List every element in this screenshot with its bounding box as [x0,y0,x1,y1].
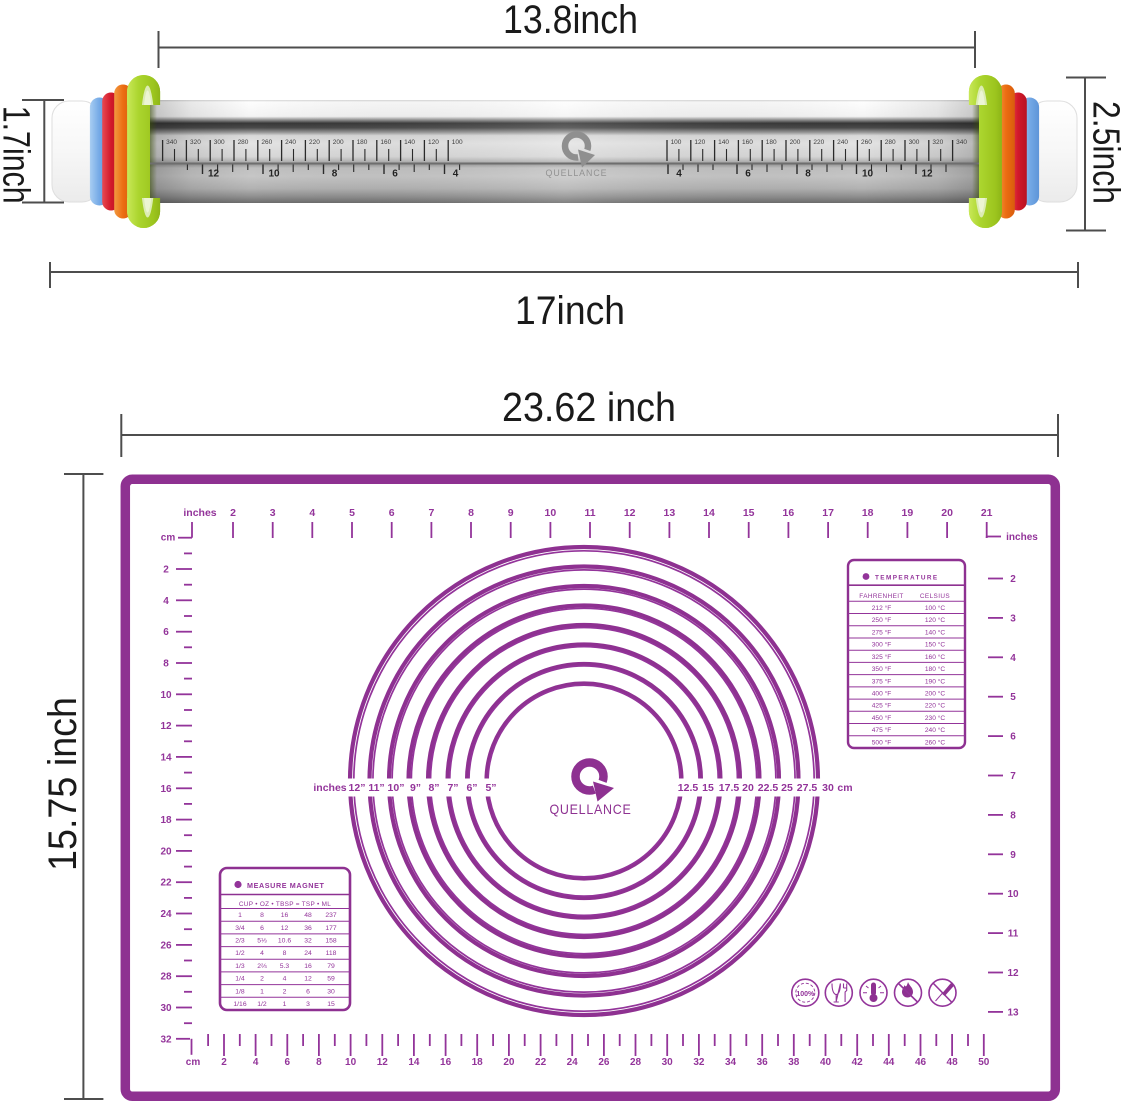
svg-text:3: 3 [306,1001,310,1008]
svg-text:6: 6 [389,507,395,519]
svg-text:160 °C: 160 °C [925,653,945,661]
svg-text:18: 18 [160,815,172,826]
svg-text:QUELLANCE: QUELLANCE [546,168,608,179]
svg-text:5”: 5” [485,782,496,794]
svg-text:QUELLANCE: QUELLANCE [550,801,632,817]
svg-text:16: 16 [281,912,289,919]
svg-text:275 °F: 275 °F [872,628,892,636]
svg-text:12: 12 [304,976,312,983]
svg-text:1/2: 1/2 [257,1001,267,1008]
svg-text:14: 14 [408,1057,420,1068]
svg-text:6: 6 [285,1057,291,1068]
svg-text:250 °F: 250 °F [872,616,892,624]
svg-text:5: 5 [349,507,355,519]
svg-text:240: 240 [837,139,848,146]
svg-text:inches: inches [313,782,346,794]
svg-text:300 °F: 300 °F [872,641,892,649]
svg-text:120: 120 [694,139,705,146]
svg-text:2⅔: 2⅔ [257,963,267,970]
svg-text:38: 38 [788,1057,800,1068]
svg-text:1/8: 1/8 [235,988,245,995]
svg-text:1.7inch: 1.7inch [0,106,36,204]
svg-text:10: 10 [345,1057,357,1068]
svg-text:50: 50 [978,1057,990,1068]
svg-text:237: 237 [325,912,337,919]
svg-text:28: 28 [630,1057,642,1068]
svg-text:9: 9 [508,507,514,519]
svg-text:12.5: 12.5 [678,782,699,794]
svg-text:2/3: 2/3 [235,938,245,945]
svg-text:30: 30 [662,1057,674,1068]
svg-text:11”: 11” [368,782,384,794]
svg-text:inches: inches [1006,532,1038,543]
svg-text:140 °C: 140 °C [925,628,945,636]
svg-text:260 °C: 260 °C [925,738,945,746]
svg-text:17.5: 17.5 [719,782,740,794]
svg-text:190 °C: 190 °C [925,677,945,685]
svg-text:100 °C: 100 °C [925,604,945,612]
svg-text:2: 2 [221,1057,227,1068]
svg-text:280: 280 [885,139,896,146]
svg-text:20: 20 [941,507,953,519]
svg-text:8: 8 [260,912,264,919]
svg-text:32: 32 [160,1034,172,1045]
svg-text:500 °F: 500 °F [872,738,892,746]
svg-text:4: 4 [676,169,682,180]
svg-text:260: 260 [861,139,872,146]
svg-text:20: 20 [160,846,172,857]
svg-text:CELSIUS: CELSIUS [920,593,950,600]
svg-text:8: 8 [332,169,338,180]
svg-text:8: 8 [163,659,169,670]
svg-text:16: 16 [304,963,312,970]
svg-text:1/2: 1/2 [235,950,245,957]
svg-text:cm: cm [161,533,176,544]
svg-text:350 °F: 350 °F [872,665,892,673]
svg-text:16: 16 [783,507,795,519]
svg-text:212 °F: 212 °F [872,604,892,612]
svg-text:5⅓: 5⅓ [257,938,267,945]
svg-text:158: 158 [325,938,337,945]
svg-text:320: 320 [932,139,943,146]
svg-text:10: 10 [160,690,172,701]
svg-text:220 °C: 220 °C [925,702,945,710]
svg-text:425 °F: 425 °F [872,702,892,710]
svg-text:4: 4 [283,976,287,983]
svg-text:23.62 inch: 23.62 inch [502,384,676,430]
svg-text:12: 12 [160,721,172,732]
svg-text:4: 4 [253,1057,259,1068]
svg-text:34: 34 [725,1057,737,1068]
svg-text:1/4: 1/4 [235,976,245,983]
svg-text:13.8inch: 13.8inch [503,0,638,42]
svg-text:26: 26 [160,940,172,951]
svg-text:120: 120 [428,139,439,146]
svg-text:240 °C: 240 °C [925,726,945,734]
svg-text:28: 28 [160,972,172,983]
svg-text:19: 19 [902,507,914,519]
svg-text:260: 260 [261,139,272,146]
svg-text:12: 12 [1007,968,1019,979]
svg-text:42: 42 [852,1057,864,1068]
svg-text:8”: 8” [428,782,439,794]
svg-text:15: 15 [327,1001,335,1008]
svg-text:TEMPERATURE: TEMPERATURE [875,575,939,582]
svg-text:12: 12 [624,507,636,519]
svg-text:22: 22 [535,1057,547,1068]
svg-text:300: 300 [909,139,920,146]
svg-text:14: 14 [160,752,172,763]
svg-text:4: 4 [309,507,315,519]
svg-text:59: 59 [327,976,335,983]
svg-text:140: 140 [404,139,415,146]
svg-text:6: 6 [1010,732,1016,743]
svg-text:200: 200 [333,139,344,146]
svg-text:25: 25 [781,782,793,794]
svg-text:3/4: 3/4 [235,925,245,932]
svg-text:220: 220 [813,139,824,146]
svg-text:340: 340 [956,139,967,146]
svg-text:10”: 10” [388,782,405,794]
svg-text:7: 7 [1010,771,1016,782]
svg-text:12: 12 [377,1057,389,1068]
svg-text:30: 30 [327,988,335,995]
svg-text:40: 40 [820,1057,832,1068]
svg-text:340: 340 [166,139,177,146]
svg-text:220: 220 [309,139,320,146]
svg-text:30: 30 [822,782,834,794]
svg-text:3: 3 [270,507,276,519]
svg-text:15: 15 [702,782,714,794]
svg-text:32: 32 [304,938,312,945]
svg-text:17: 17 [822,507,834,519]
svg-text:6: 6 [260,925,264,932]
svg-text:177: 177 [325,925,337,932]
svg-text:4: 4 [163,596,169,607]
svg-text:230 °C: 230 °C [925,714,945,722]
svg-text:12: 12 [281,925,289,932]
svg-text:180: 180 [766,139,777,146]
svg-text:18: 18 [862,507,874,519]
svg-text:22.5: 22.5 [758,782,779,794]
svg-text:150 °C: 150 °C [925,641,945,649]
svg-text:48: 48 [304,912,312,919]
svg-text:16: 16 [160,784,172,795]
svg-text:7”: 7” [447,782,458,794]
svg-text:30: 30 [160,1003,172,1014]
svg-text:8: 8 [283,950,287,957]
svg-text:9”: 9” [410,782,421,794]
svg-text:inches: inches [183,507,216,519]
svg-text:24: 24 [160,909,172,920]
svg-text:4: 4 [453,169,459,180]
svg-text:2: 2 [283,988,287,995]
svg-text:3: 3 [1010,613,1016,624]
svg-text:160: 160 [742,139,753,146]
svg-text:325 °F: 325 °F [872,653,892,661]
svg-text:36: 36 [757,1057,769,1068]
svg-text:48: 48 [947,1057,959,1068]
svg-text:16: 16 [440,1057,452,1068]
svg-text:32: 32 [693,1057,705,1068]
svg-text:5: 5 [1010,692,1016,703]
svg-text:44: 44 [883,1057,895,1068]
svg-text:280: 280 [238,139,249,146]
svg-text:12: 12 [921,169,933,180]
svg-text:1/3: 1/3 [235,963,245,970]
svg-text:36: 36 [304,925,312,932]
svg-text:8: 8 [468,507,474,519]
svg-text:6: 6 [392,169,398,180]
svg-text:2: 2 [163,565,169,576]
svg-text:11: 11 [1008,929,1019,940]
svg-text:10: 10 [268,169,280,180]
svg-text:475 °F: 475 °F [872,726,892,734]
svg-text:5.3: 5.3 [280,963,290,970]
svg-text:6: 6 [745,169,751,180]
svg-text:24: 24 [304,950,312,957]
svg-text:1: 1 [283,1001,287,1008]
svg-text:450 °F: 450 °F [872,714,892,722]
svg-text:4: 4 [260,950,264,957]
svg-text:9: 9 [1010,850,1016,861]
svg-text:10: 10 [862,169,874,180]
svg-text:200 °C: 200 °C [925,690,945,698]
svg-text:MEASURE MAGNET: MEASURE MAGNET [247,881,324,890]
svg-text:cm: cm [186,1057,201,1068]
svg-text:200: 200 [790,139,801,146]
svg-text:100%: 100% [796,991,815,998]
svg-text:26: 26 [598,1057,610,1068]
svg-text:CUP • OZ • TBSP = TSP • ML: CUP • OZ • TBSP = TSP • ML [239,901,331,908]
svg-text:6: 6 [163,627,169,638]
svg-text:15.75 inch: 15.75 inch [41,697,85,871]
svg-text:21: 21 [981,507,993,519]
svg-text:180 °C: 180 °C [925,665,945,673]
svg-text:12: 12 [208,169,220,180]
svg-text:18: 18 [472,1057,484,1068]
svg-text:7: 7 [428,507,434,519]
svg-text:8: 8 [316,1057,322,1068]
svg-text:10.6: 10.6 [278,938,291,945]
svg-text:2.5inch: 2.5inch [1084,101,1126,204]
svg-text:27.5: 27.5 [797,782,818,794]
svg-text:1: 1 [238,912,242,919]
svg-text:2: 2 [260,976,264,983]
svg-text:20: 20 [742,782,754,794]
svg-text:6”: 6” [466,782,477,794]
svg-text:15: 15 [743,507,755,519]
svg-text:300: 300 [214,139,225,146]
svg-text:11: 11 [584,507,595,519]
svg-text:120 °C: 120 °C [925,616,945,624]
svg-text:79: 79 [327,963,335,970]
svg-text:17inch: 17inch [515,289,625,333]
svg-text:118: 118 [326,950,337,957]
svg-text:100: 100 [671,139,682,146]
svg-text:13: 13 [1007,1007,1019,1018]
svg-text:24: 24 [567,1057,579,1068]
svg-text:240: 240 [285,139,296,146]
svg-text:4: 4 [1010,653,1016,664]
svg-text:2: 2 [230,507,236,519]
svg-text:46: 46 [915,1057,927,1068]
svg-text:400 °F: 400 °F [872,690,892,698]
svg-text:13: 13 [664,507,676,519]
svg-text:8: 8 [805,169,811,180]
svg-text:1: 1 [260,988,264,995]
svg-text:cm: cm [837,782,852,794]
svg-text:375 °F: 375 °F [872,677,892,685]
svg-text:180: 180 [357,139,368,146]
svg-text:20: 20 [503,1057,515,1068]
svg-text:22: 22 [160,878,172,889]
svg-text:100: 100 [452,139,463,146]
svg-text:14: 14 [703,507,715,519]
svg-text:10: 10 [545,507,557,519]
svg-text:6: 6 [306,988,310,995]
svg-text:1/16: 1/16 [233,1001,246,1008]
svg-text:FAHRENHEIT: FAHRENHEIT [859,593,903,600]
svg-text:320: 320 [190,139,201,146]
svg-text:12”: 12” [349,782,366,794]
svg-text:160: 160 [380,139,391,146]
svg-text:140: 140 [718,139,729,146]
svg-text:8: 8 [1010,810,1016,821]
svg-text:2: 2 [1010,574,1016,585]
svg-text:10: 10 [1007,889,1019,900]
